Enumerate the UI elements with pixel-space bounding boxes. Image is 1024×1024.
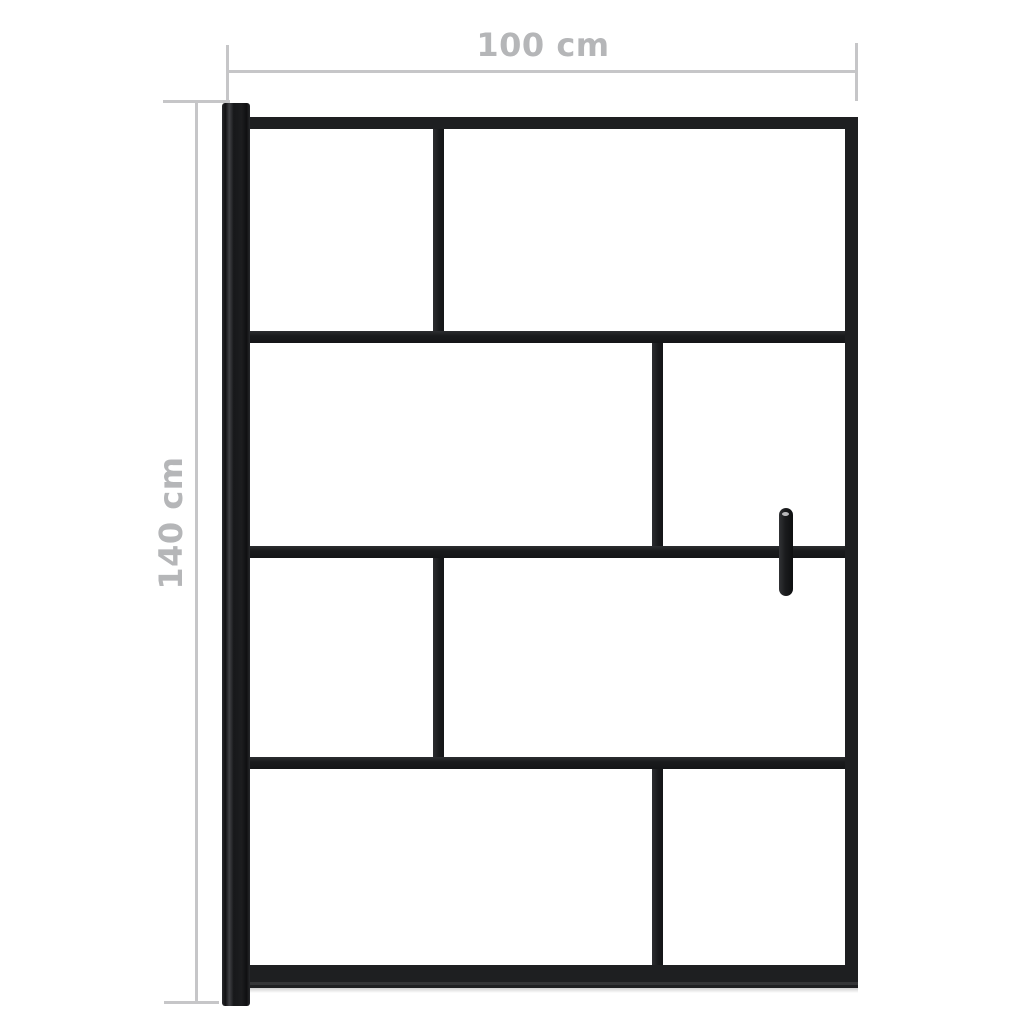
handle-highlight-icon: [782, 512, 789, 516]
horizontal-mullion: [250, 546, 845, 558]
height-dimension-tick-bottom: [164, 1001, 219, 1004]
door-handle: [779, 508, 793, 596]
bottom-shadow: [250, 988, 858, 993]
width-dimension-tick-left: [226, 45, 229, 103]
width-dimension-tick-right: [855, 43, 858, 101]
screen-frame: [250, 117, 858, 988]
vertical-mullion: [652, 769, 663, 965]
vertical-mullion: [652, 343, 663, 546]
horizontal-mullion: [250, 331, 845, 343]
wall-profile: [222, 103, 250, 1006]
glass-area: [250, 129, 845, 965]
vertical-mullion: [433, 129, 444, 331]
width-dimension-label: 100 cm: [228, 26, 858, 64]
width-dimension-line: [228, 70, 858, 73]
horizontal-mullion: [250, 757, 845, 769]
product-diagram: 100 cm 140 cm: [0, 0, 1024, 1024]
vertical-mullion: [433, 558, 444, 757]
height-dimension-label: 140 cm: [152, 456, 190, 589]
height-dimension-line: [195, 103, 198, 1003]
height-dimension-tick-top: [163, 100, 230, 103]
